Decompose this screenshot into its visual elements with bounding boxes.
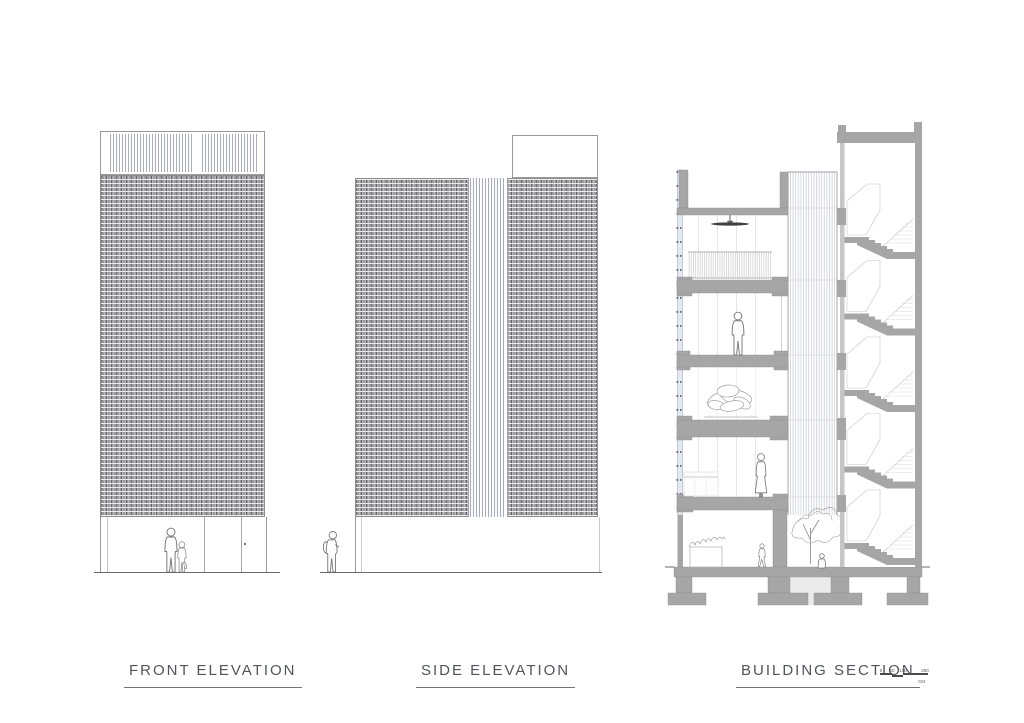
courtyard-louver-screen	[788, 172, 837, 515]
floor-slab	[677, 280, 788, 293]
wall-edge-line	[361, 517, 362, 572]
side-elevation-title: SIDE ELEVATION	[416, 662, 575, 688]
roof-slab	[677, 208, 788, 215]
scale-bar: 0 50 100 200 CM	[880, 668, 928, 686]
entry-door-edge	[241, 517, 242, 572]
footing	[668, 593, 706, 605]
plants	[689, 537, 725, 547]
floor-slab	[677, 497, 788, 510]
person-figure	[758, 544, 765, 567]
louver-lines	[470, 178, 506, 517]
door-handle	[244, 543, 246, 545]
parapet-wall	[679, 170, 688, 208]
louver-strip	[468, 178, 508, 517]
footing	[814, 593, 862, 605]
ground-wall	[773, 510, 787, 567]
building-section-drawing	[660, 100, 930, 620]
footing	[887, 593, 928, 605]
front-elevation-title: FRONT ELEVATION	[124, 662, 302, 688]
front-elevation-drawing	[100, 131, 265, 572]
parapet-louver-left	[110, 134, 194, 172]
parapet-screen	[100, 131, 265, 175]
ground-line	[320, 572, 602, 573]
side-elevation-drawing	[355, 135, 598, 572]
tower-right-wall	[915, 143, 922, 567]
scale-bar-row-bottom	[880, 675, 928, 677]
ground-line	[94, 572, 280, 573]
planter	[689, 537, 725, 567]
cabinet	[684, 472, 718, 496]
storefront-mullion	[204, 517, 205, 572]
parapet-wall	[780, 172, 788, 208]
drawing-sheet: FRONT ELEVATION SIDE ELEVATION BUILDING …	[0, 0, 1024, 723]
footing	[758, 593, 808, 605]
tower-roof-slab	[837, 132, 922, 143]
balcony-railing	[688, 252, 772, 278]
floor-slab	[677, 420, 788, 437]
parapet-louver-right	[202, 134, 258, 172]
rooftop-box	[512, 135, 598, 178]
storefront	[100, 517, 267, 572]
pedestrians-figure	[153, 526, 197, 572]
child-figure	[818, 554, 825, 568]
stair-tower	[837, 122, 922, 567]
storefront-mullion	[107, 517, 108, 572]
floor-slab	[677, 355, 788, 367]
scale-unit: CM	[918, 679, 925, 684]
tree	[792, 507, 842, 564]
person-figure	[322, 526, 342, 572]
ground-wall	[355, 517, 600, 572]
brick-facade	[100, 175, 265, 517]
ground-slab	[674, 567, 922, 577]
